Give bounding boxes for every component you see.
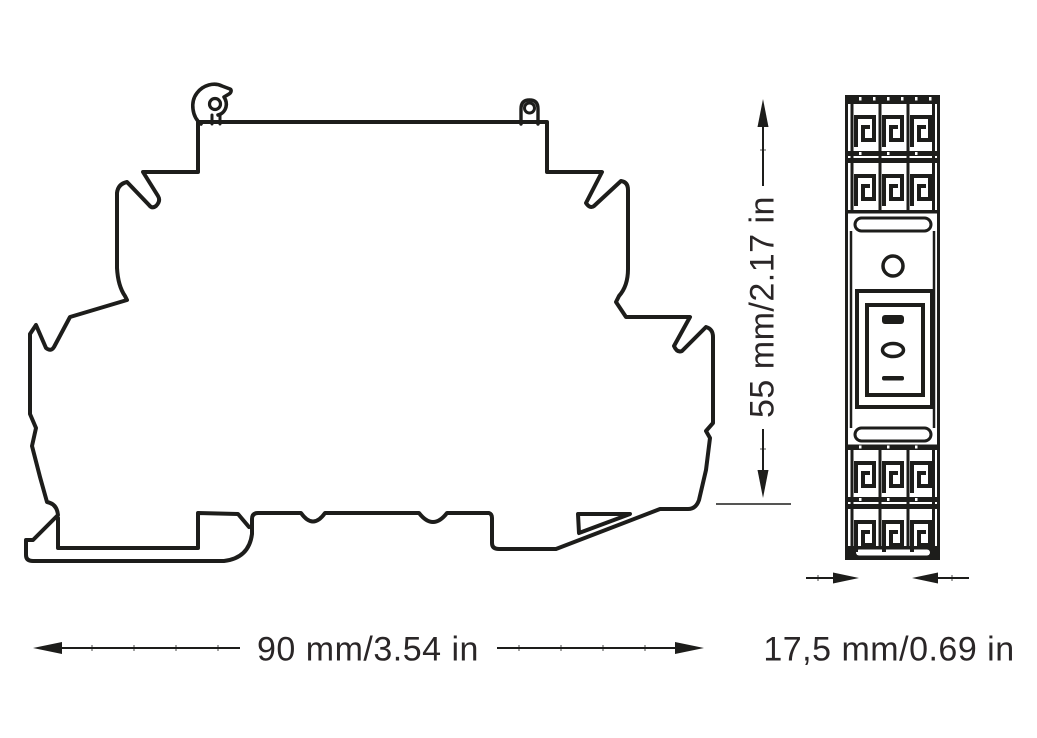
din-rail-groove-lines bbox=[58, 513, 249, 548]
depth-dimension-arrows bbox=[806, 573, 969, 584]
front-view-drawing bbox=[846, 96, 939, 559]
depth-dimension-label: 17,5 mm/0.69 in bbox=[763, 631, 1014, 670]
cage-clamp-icon-row bbox=[856, 176, 930, 206]
cage-clamp-icon-row bbox=[856, 117, 930, 147]
drawing-canvas bbox=[0, 0, 1037, 738]
width-dimension-label: 90 mm/3.54 in bbox=[257, 631, 479, 670]
arrowhead-left-icon bbox=[33, 642, 62, 654]
arrowhead-down-icon bbox=[758, 470, 769, 498]
arrowhead-right-icon bbox=[675, 642, 704, 654]
din-rail-latch-hook-icon bbox=[193, 84, 231, 124]
marker-slot-top bbox=[855, 218, 931, 231]
marker-slot-bottom bbox=[855, 428, 931, 441]
arrowhead-inward-left-icon bbox=[912, 573, 938, 584]
arrowhead-inward-right-icon bbox=[833, 573, 859, 584]
side-view-outline bbox=[26, 122, 713, 561]
terminal-block-top bbox=[846, 96, 939, 214]
technical-drawing-page: 90 mm/3.54 in 55 mm/2.17 in 17,5 mm/0.69… bbox=[0, 0, 1037, 738]
height-dimension-label: 55 mm/2.17 in bbox=[744, 196, 783, 418]
switch-icon bbox=[857, 291, 932, 407]
arrowhead-up-icon bbox=[758, 99, 769, 127]
side-view-drawing bbox=[26, 84, 713, 561]
cage-clamp-icon-row bbox=[856, 463, 930, 493]
terminal-block-bottom bbox=[846, 445, 939, 560]
led-indicator-icon bbox=[883, 256, 903, 276]
